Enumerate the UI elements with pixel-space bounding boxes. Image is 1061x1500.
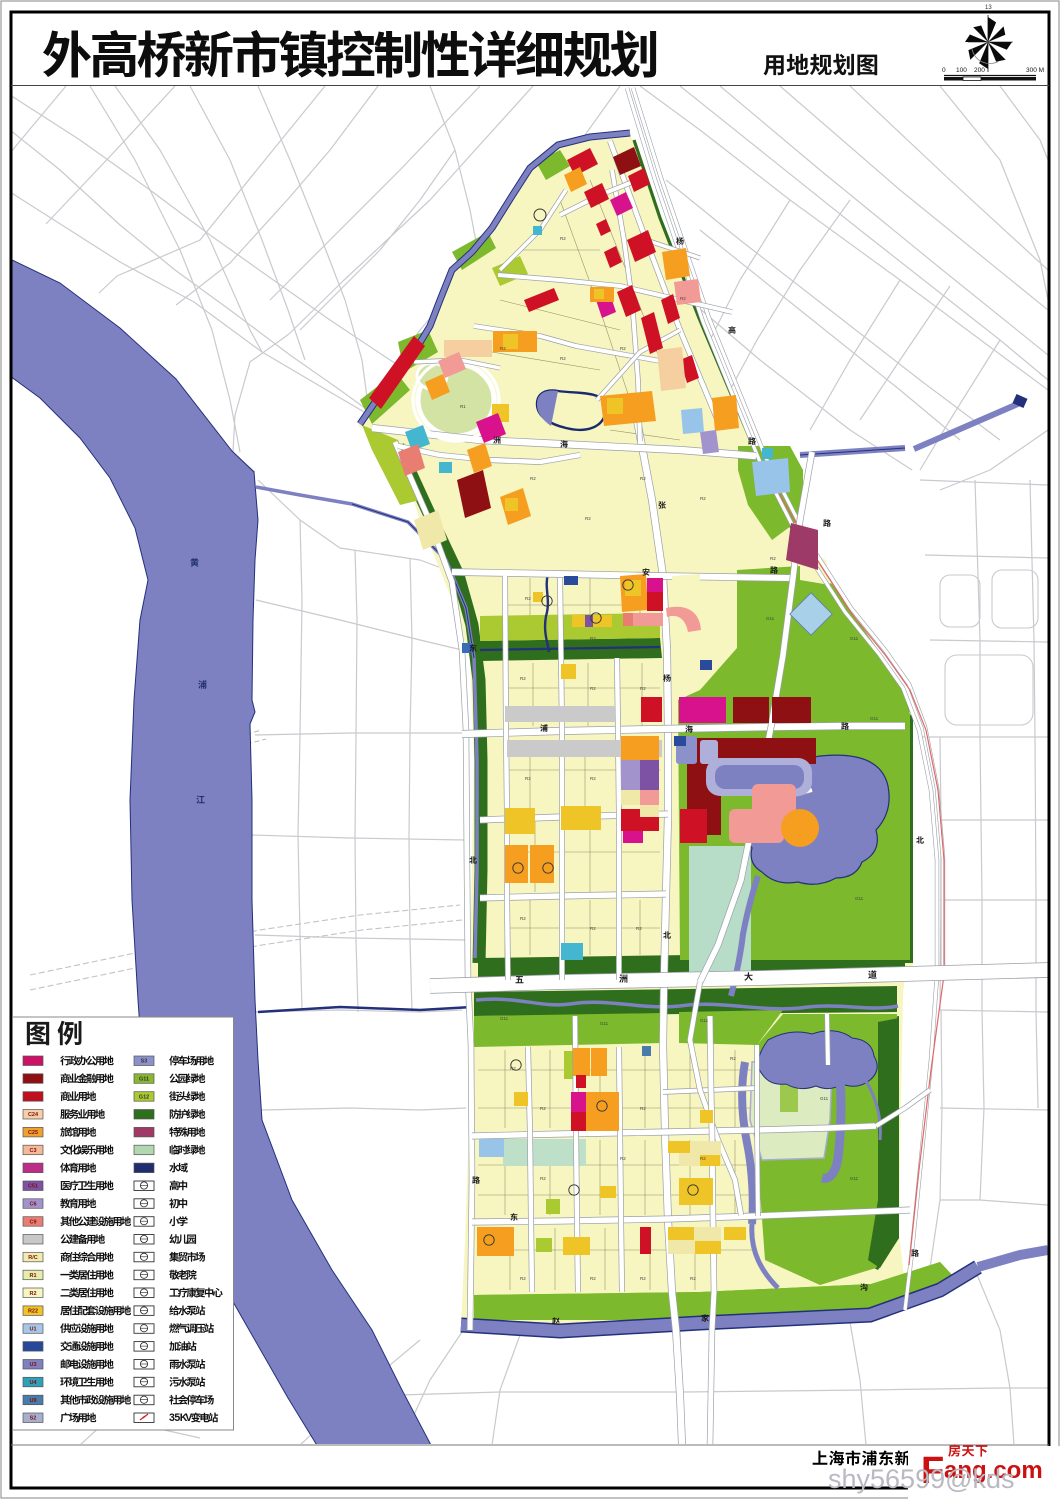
svg-text:R2: R2 <box>640 476 646 481</box>
svg-text:R2: R2 <box>585 516 591 521</box>
svg-text:R2: R2 <box>640 686 646 691</box>
svg-text:R2: R2 <box>730 1056 736 1061</box>
svg-text:R2: R2 <box>636 926 642 931</box>
svg-text:R2: R2 <box>590 636 596 641</box>
svg-text:G11: G11 <box>850 1176 859 1181</box>
svg-text:R2: R2 <box>590 776 596 781</box>
svg-text:R2: R2 <box>500 346 506 351</box>
svg-text:R2: R2 <box>620 1156 626 1161</box>
svg-text:R2: R2 <box>520 916 526 921</box>
svg-text:R2: R2 <box>530 476 536 481</box>
svg-text:R2: R2 <box>640 1276 646 1281</box>
svg-text:R22: R22 <box>28 1309 38 1315</box>
svg-text:R2: R2 <box>560 356 566 361</box>
svg-text:R2: R2 <box>540 1176 546 1181</box>
svg-text:C3: C3 <box>29 1148 36 1154</box>
svg-text:R2: R2 <box>640 1106 646 1111</box>
svg-text:R2: R2 <box>590 1276 596 1281</box>
svg-text:R2: R2 <box>520 1276 526 1281</box>
svg-text:0: 0 <box>942 67 946 74</box>
svg-text:G11: G11 <box>500 1016 509 1021</box>
svg-text:R2: R2 <box>540 1106 546 1111</box>
svg-text:200: 200 <box>974 67 985 74</box>
svg-text:R2: R2 <box>700 496 706 501</box>
svg-text:C24: C24 <box>28 1112 39 1118</box>
svg-text:U1: U1 <box>29 1327 36 1333</box>
svg-text:R2: R2 <box>590 686 596 691</box>
svg-text:C6: C6 <box>29 1202 36 1208</box>
svg-text:R2: R2 <box>560 236 566 241</box>
svg-text:C9: C9 <box>29 1219 36 1225</box>
svg-text:R2: R2 <box>525 596 531 601</box>
svg-text:G11: G11 <box>850 636 859 641</box>
svg-text:V: V <box>185 1412 192 1424</box>
svg-text:R2: R2 <box>29 1291 36 1297</box>
svg-text:R2: R2 <box>770 556 776 561</box>
svg-text:G12: G12 <box>139 1094 149 1100</box>
svg-text:R2: R2 <box>620 346 626 351</box>
svg-text:G11: G11 <box>700 1018 709 1023</box>
svg-text:U3: U3 <box>29 1362 36 1368</box>
svg-text:C25: C25 <box>28 1130 38 1136</box>
svg-text:G11: G11 <box>766 616 775 621</box>
svg-text:R2: R2 <box>700 1156 706 1161</box>
svg-text:13: 13 <box>985 5 992 11</box>
svg-text:G11: G11 <box>870 716 879 721</box>
svg-text:100: 100 <box>956 67 967 74</box>
svg-text:R/C: R/C <box>28 1255 38 1261</box>
svg-text:R1: R1 <box>460 404 466 409</box>
svg-text:shy56599@kds: shy56599@kds <box>828 1464 1015 1494</box>
svg-text:R1: R1 <box>29 1273 36 1279</box>
svg-text:U9: U9 <box>29 1398 36 1404</box>
svg-text:R2: R2 <box>680 296 686 301</box>
svg-text:G11: G11 <box>855 896 864 901</box>
svg-text:G11: G11 <box>139 1077 149 1083</box>
svg-text:G11: G11 <box>600 1021 609 1026</box>
svg-text:R2: R2 <box>510 1066 516 1071</box>
svg-text:S2: S2 <box>30 1416 37 1422</box>
svg-text:R2: R2 <box>520 676 526 681</box>
svg-text:C51: C51 <box>28 1184 38 1190</box>
svg-text:U4: U4 <box>29 1380 37 1386</box>
svg-text:G11: G11 <box>820 1096 829 1101</box>
svg-text:R2: R2 <box>525 776 531 781</box>
svg-text:S3: S3 <box>141 1059 148 1065</box>
svg-text:R2: R2 <box>690 1276 696 1281</box>
svg-text:R2: R2 <box>590 926 596 931</box>
svg-text:300 M: 300 M <box>1026 67 1044 74</box>
